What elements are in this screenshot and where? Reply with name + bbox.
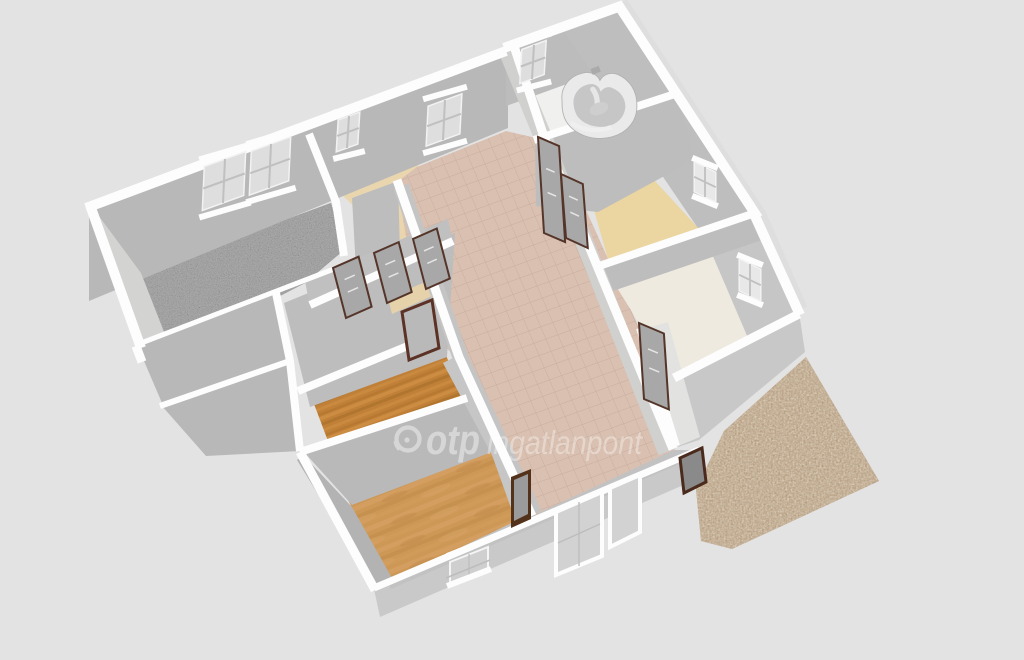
svg-text:ingatlanpont: ingatlanpont <box>487 424 644 461</box>
svg-text:otp: otp <box>426 416 480 463</box>
